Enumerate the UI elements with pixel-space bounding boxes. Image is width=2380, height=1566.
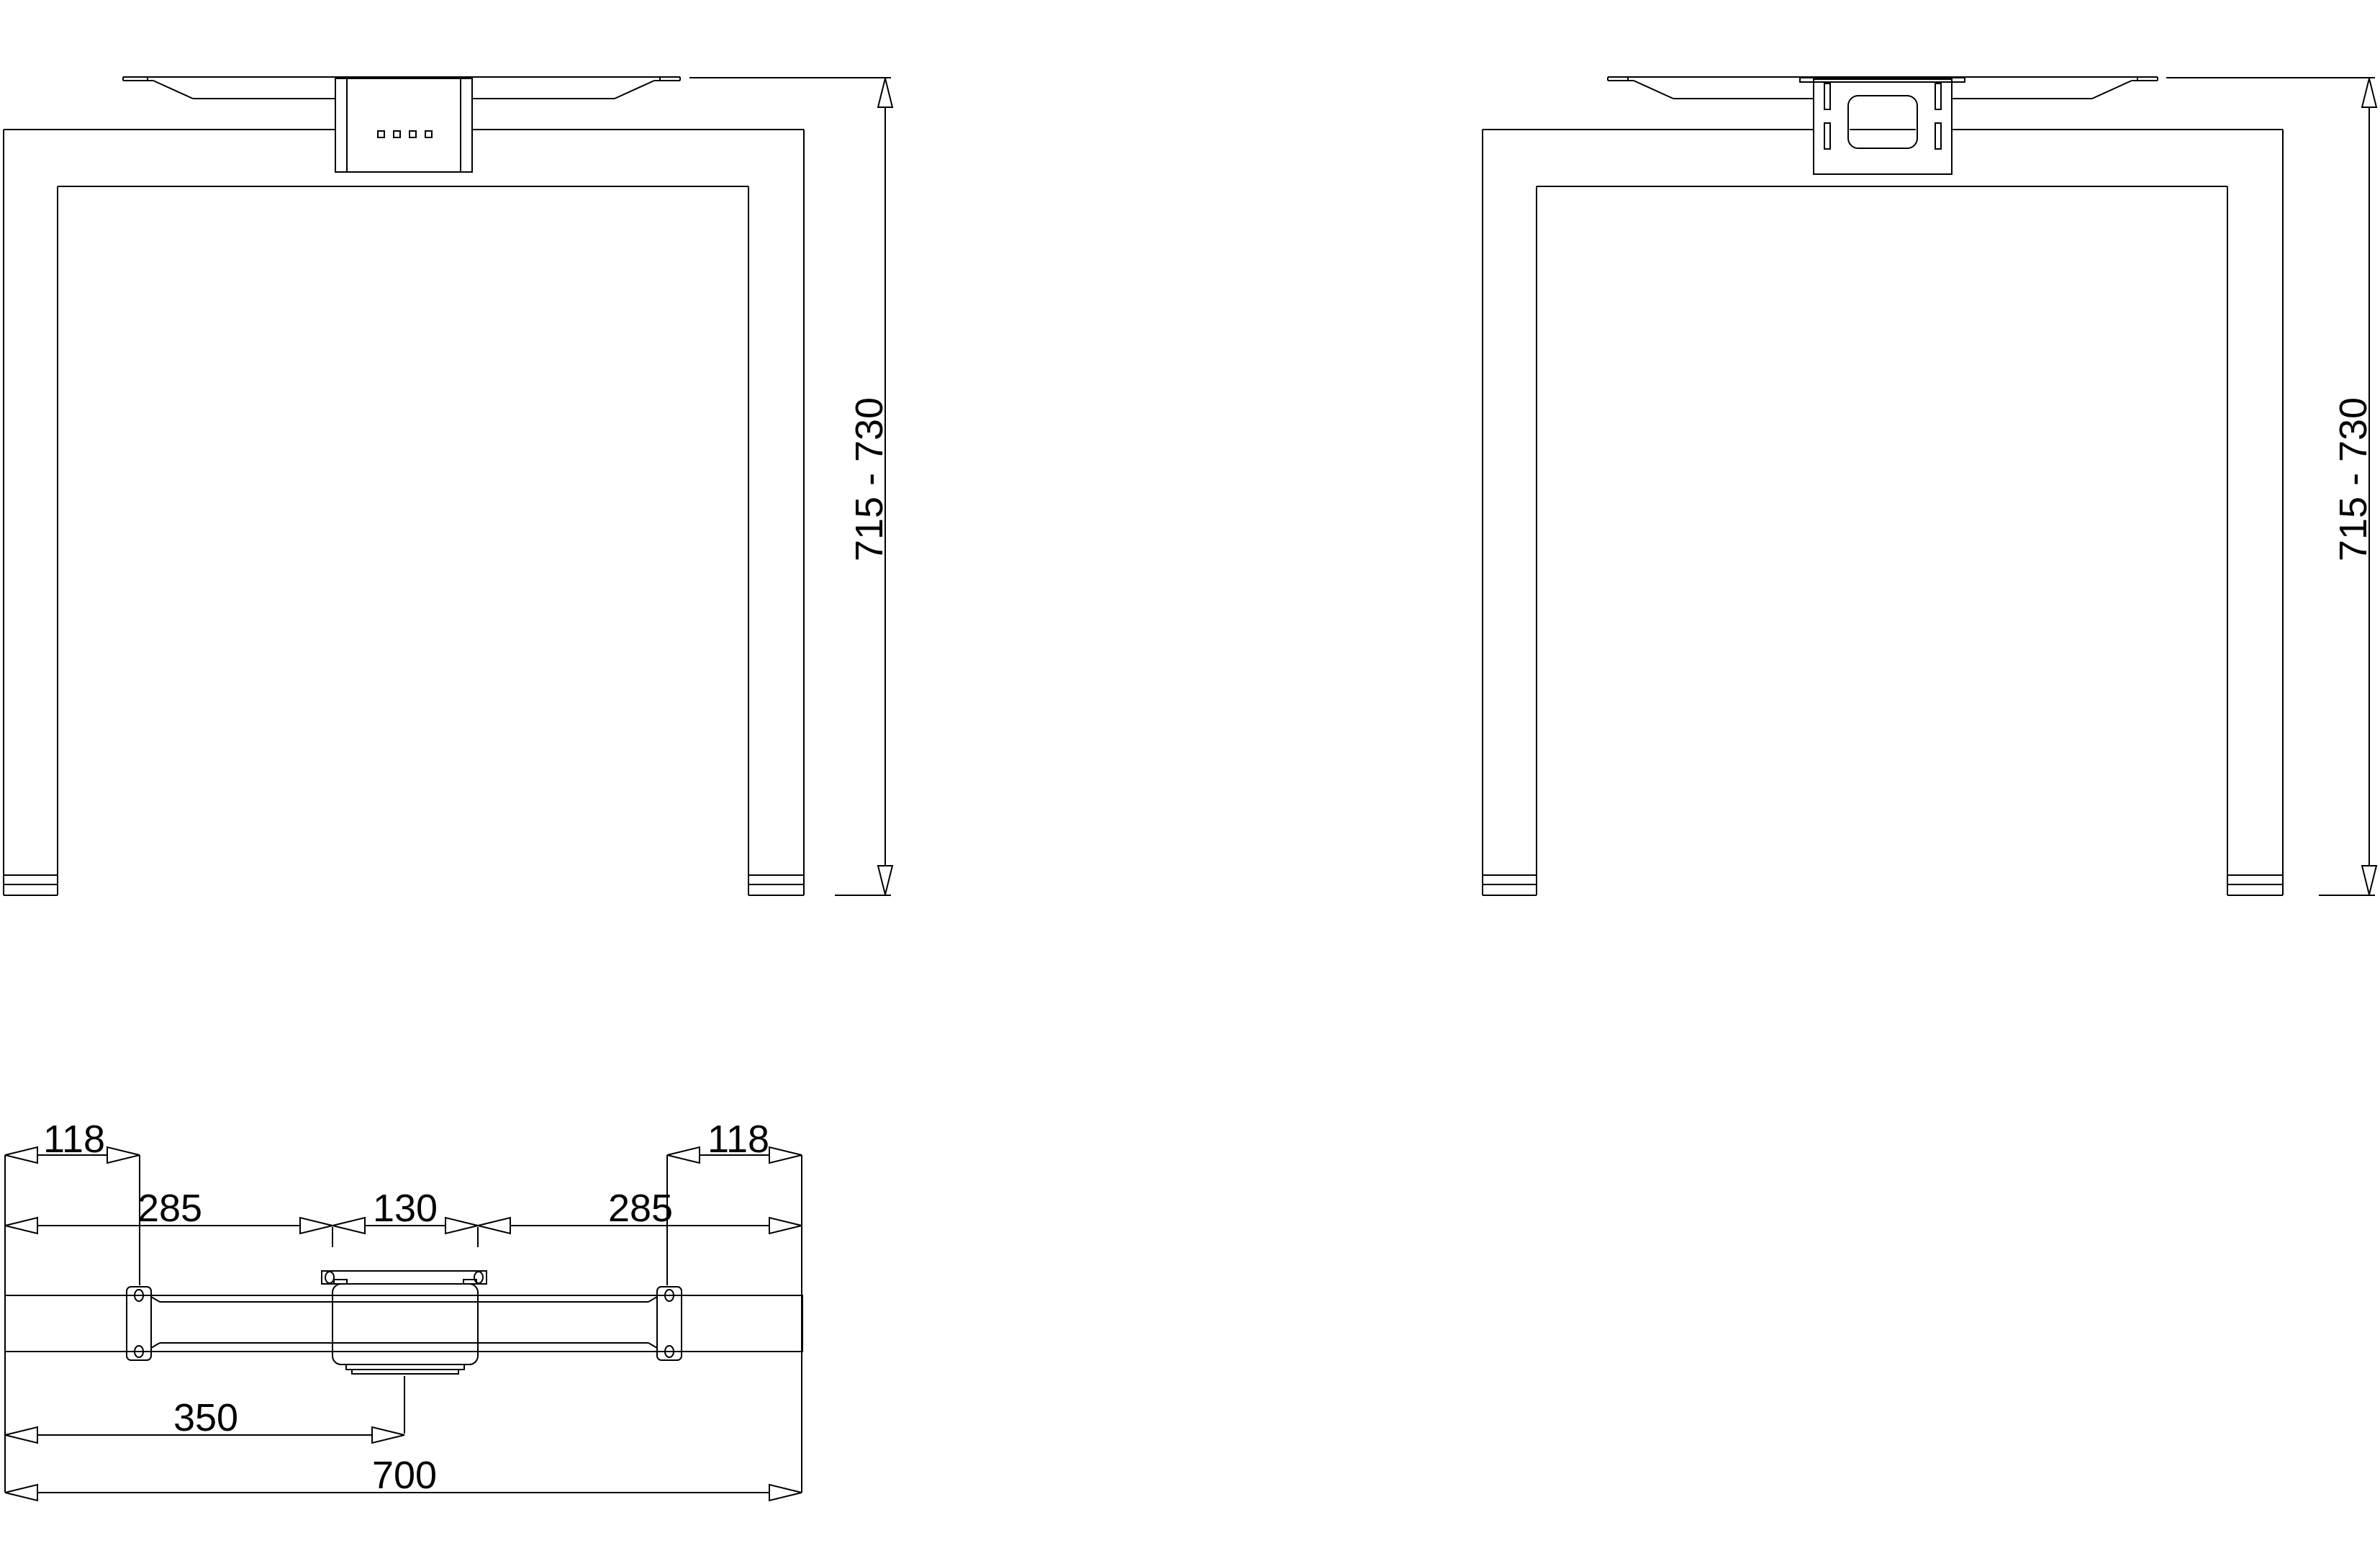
arrowhead-down	[2362, 866, 2376, 895]
arrowhead-left	[667, 1147, 700, 1163]
crossbar-chamfer	[648, 1297, 657, 1302]
crossbar-chamfer	[648, 1343, 657, 1348]
plate-hole	[325, 1272, 334, 1283]
arrowhead-left	[5, 1218, 37, 1234]
dim-label-700: 700	[372, 1454, 437, 1497]
arrowhead-right	[769, 1147, 802, 1163]
column-step	[346, 1364, 464, 1370]
arrowhead-right	[107, 1147, 140, 1163]
arrowhead-left	[332, 1218, 365, 1234]
rear-frame-outline	[1483, 130, 2283, 895]
crossbar-chamfer	[151, 1297, 160, 1302]
top-view: 118 118 285 130 285 350 700	[5, 1118, 802, 1501]
left-clamp-plate	[127, 1287, 151, 1360]
dim-label-118-left: 118	[43, 1118, 105, 1161]
technical-drawing-page: 715 - 730	[0, 0, 2380, 1566]
top-leg-bar	[5, 1271, 802, 1374]
bracket-body	[1814, 79, 1952, 174]
arrowhead-right	[445, 1218, 478, 1234]
arrowhead-down	[878, 866, 892, 895]
rear-feet	[1483, 875, 2283, 895]
front-view: 715 - 730	[4, 77, 892, 895]
dim-label-118-right: 118	[707, 1118, 769, 1161]
plate-bevel	[615, 81, 654, 99]
rear-view: 715 - 730	[1483, 77, 2376, 895]
rear-height-dim-label: 715 - 730	[2332, 397, 2375, 561]
plate-bevel	[2092, 81, 2132, 99]
rear-mounting-bracket	[1800, 78, 1965, 174]
arrowhead-left	[5, 1427, 37, 1443]
arrowhead-right	[769, 1485, 802, 1501]
plate-notch	[334, 1280, 347, 1284]
right-clamp-plate	[657, 1287, 682, 1360]
arrowhead-left	[478, 1218, 510, 1234]
arrowhead-right	[300, 1218, 332, 1234]
plate-hole	[474, 1272, 483, 1283]
bracket-slot	[1824, 123, 1830, 149]
crossbar-chamfer	[151, 1343, 160, 1348]
front-mounting-bracket	[335, 78, 472, 172]
plate-bevel	[153, 81, 193, 99]
arrowhead-right	[769, 1218, 802, 1234]
plate-notch	[463, 1280, 476, 1284]
dim-label-285-left: 285	[137, 1187, 202, 1230]
column-step	[352, 1370, 458, 1374]
bracket-hole	[410, 131, 416, 137]
bracket-slot	[1824, 83, 1830, 109]
bracket-opening	[1848, 96, 1917, 148]
bracket-hole	[425, 131, 432, 137]
dim-label-285-right: 285	[608, 1187, 673, 1230]
bracket-slot	[1935, 83, 1941, 109]
front-top-plate	[123, 77, 680, 99]
front-height-dim-label: 715 - 730	[848, 397, 891, 561]
bracket-hole	[378, 131, 384, 137]
arrowhead-up	[878, 78, 892, 107]
bracket-slot	[1935, 123, 1941, 149]
plate-bevel	[1634, 81, 1673, 99]
rear-height-dimension: 715 - 730	[2166, 78, 2376, 895]
arrowhead-right	[372, 1427, 404, 1443]
dim-label-350: 350	[173, 1396, 238, 1439]
front-frame-outline	[4, 130, 804, 895]
arrowhead-left	[5, 1147, 37, 1163]
front-feet	[4, 875, 804, 895]
arrowhead-left	[5, 1485, 37, 1501]
arrowhead-up	[2362, 78, 2376, 107]
dim-label-130: 130	[373, 1187, 438, 1230]
front-height-dimension: 715 - 730	[689, 78, 892, 895]
bracket-hole	[394, 131, 400, 137]
desk-frame-drawing: 715 - 730	[0, 0, 2380, 1566]
bracket-body	[335, 78, 472, 172]
